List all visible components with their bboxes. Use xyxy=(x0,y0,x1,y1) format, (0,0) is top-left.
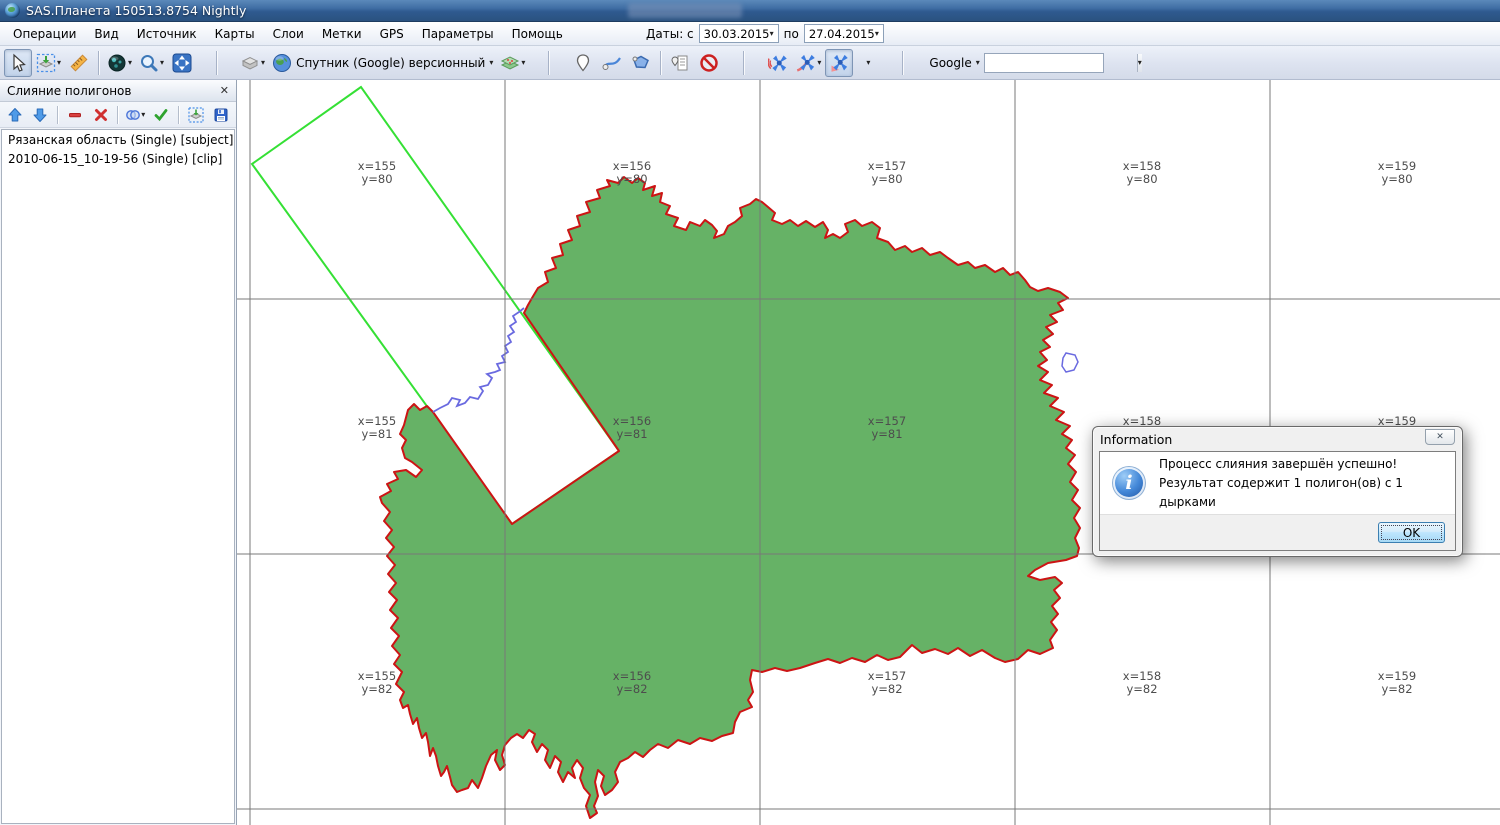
chevron-down-icon: ▾ xyxy=(521,59,525,67)
map-source-button[interactable]: Спутник (Google) версионный ▾ xyxy=(269,49,496,77)
date-from-combobox[interactable]: 30.03.2015 ▾ xyxy=(699,24,779,43)
toolbar-separator xyxy=(660,51,661,75)
chevron-down-icon: ▾ xyxy=(160,59,164,67)
tile-label: x=156 xyxy=(613,159,651,173)
chevron-down-icon: ▾ xyxy=(866,59,870,67)
menu-item-7[interactable]: GPS xyxy=(371,23,413,45)
panel-header: Слияние полигонов ✕ xyxy=(0,80,236,102)
tile-label: y=82 xyxy=(1126,682,1157,696)
polygon-list-item[interactable]: Рязанская область (Single) [subject] xyxy=(2,130,234,149)
menu-item-3[interactable]: Источник xyxy=(128,23,206,45)
pan-tool-button[interactable] xyxy=(4,49,32,77)
toolbar-separator xyxy=(216,51,217,75)
chevron-down-icon: ▾ xyxy=(976,59,980,67)
tile-label: y=82 xyxy=(361,682,392,696)
ok-button[interactable]: OK xyxy=(1378,522,1445,543)
ruler-icon xyxy=(69,53,89,73)
move-down-button[interactable] xyxy=(29,104,53,126)
polygon-list-item[interactable]: 2010-06-15_10-19-56 (Single) [clip] xyxy=(2,149,234,168)
save-floppy-icon xyxy=(213,107,229,123)
apply-merge-button[interactable] xyxy=(149,104,173,126)
date-to-combobox[interactable]: 27.04.2015 ▾ xyxy=(804,24,884,43)
dialog-message: Процесс слияния завершён успешно! Резуль… xyxy=(1159,455,1449,512)
remove-item-button[interactable] xyxy=(63,104,87,126)
date-from-value: 30.03.2015 xyxy=(704,27,770,41)
toolbar-separator xyxy=(902,51,903,75)
fullscreen-arrows-icon xyxy=(172,53,192,73)
tile-label: x=155 xyxy=(358,159,396,173)
gps-satellite-track-icon xyxy=(796,53,816,73)
dates-label: Даты: с xyxy=(646,27,694,41)
date-filter: Даты: с 30.03.2015 ▾ по 27.04.2015 ▾ xyxy=(646,24,884,43)
cache-box-icon xyxy=(240,53,260,73)
menu-item-4[interactable]: Карты xyxy=(206,23,264,45)
add-polygon-button[interactable] xyxy=(627,49,655,77)
merge-circles-icon xyxy=(125,107,141,123)
tile-label: y=82 xyxy=(616,682,647,696)
tile-label: y=82 xyxy=(1381,682,1412,696)
search-provider-button[interactable]: Google ▾ xyxy=(923,49,982,77)
no-sign-icon xyxy=(699,53,719,73)
window-titlebar: SAS.Планета 150513.8754 Nightly xyxy=(0,0,1500,22)
placemark-pin-icon xyxy=(573,53,593,73)
date-to-value: 27.04.2015 xyxy=(809,27,875,41)
cache-mode-button[interactable]: ▾ xyxy=(237,49,268,77)
selection-manager-button[interactable]: ▾ xyxy=(33,49,64,77)
menu-item-1[interactable]: Операции xyxy=(4,23,85,45)
arrow-down-icon xyxy=(32,107,48,123)
placemark-manager-button[interactable] xyxy=(666,49,694,77)
selection-download-icon xyxy=(188,107,204,123)
dialog-title: Information xyxy=(1100,432,1172,447)
panel-title: Слияние полигонов xyxy=(7,84,131,98)
tile-label: y=81 xyxy=(361,427,392,441)
info-icon: i xyxy=(1113,467,1145,499)
move-up-button[interactable] xyxy=(3,104,27,126)
path-route-icon xyxy=(602,53,622,73)
zoom-tool-button[interactable]: ▾ xyxy=(136,49,167,77)
fullscreen-button[interactable] xyxy=(168,49,196,77)
tile-label: x=157 xyxy=(868,414,906,428)
app-globe-icon xyxy=(5,3,20,18)
save-result-button[interactable] xyxy=(209,104,233,126)
lake-outline xyxy=(1062,353,1078,372)
region-polygon xyxy=(380,177,1080,818)
dialog-body: i Процесс слияния завершён успешно! Резу… xyxy=(1099,451,1456,551)
arrow-up-icon xyxy=(7,107,23,123)
cursor-icon xyxy=(8,53,28,73)
menu-items: ОперацииВидИсточникКартыСлоиМеткиGPSПара… xyxy=(4,23,572,45)
tile-label: x=159 xyxy=(1378,669,1416,683)
selection-download-icon xyxy=(36,53,56,73)
tile-label: x=158 xyxy=(1123,159,1161,173)
dates-between-label: по xyxy=(784,27,799,41)
clear-all-button[interactable] xyxy=(89,104,113,126)
window-title: SAS.Планета 150513.8754 Nightly xyxy=(26,3,246,18)
tile-label: y=80 xyxy=(871,172,902,186)
tile-label: y=80 xyxy=(361,172,392,186)
tile-label: y=80 xyxy=(616,172,647,186)
main-toolbar: ▾ ▾ ▾ xyxy=(0,46,1500,80)
chevron-down-icon: ▾ xyxy=(875,30,879,38)
panel-toolbar-separator xyxy=(178,106,179,124)
select-result-button[interactable] xyxy=(184,104,208,126)
tile-label: x=157 xyxy=(868,669,906,683)
menu-item-6[interactable]: Метки xyxy=(313,23,371,45)
dialog-message-line1: Процесс слияния завершён успешно! xyxy=(1159,455,1449,474)
layers-button[interactable]: ▾ xyxy=(497,49,528,77)
merge-polygons-panel: Слияние полигонов ✕ xyxy=(0,80,237,825)
close-icon[interactable]: ✕ xyxy=(220,84,229,97)
river-line xyxy=(433,308,524,412)
add-placemark-button[interactable] xyxy=(569,49,597,77)
magnifier-icon xyxy=(139,53,159,73)
menu-item-8[interactable]: Параметры xyxy=(413,23,503,45)
tile-label: x=157 xyxy=(868,159,906,173)
gps-track-button[interactable]: ▾ xyxy=(793,49,824,77)
chevron-down-icon: ▾ xyxy=(1138,59,1142,67)
chevron-down-icon: ▾ xyxy=(489,59,493,67)
tile-label: x=159 xyxy=(1378,159,1416,173)
placemark-list-icon xyxy=(670,53,690,73)
globe-map-icon xyxy=(272,53,292,73)
tile-label: x=155 xyxy=(358,414,396,428)
layers-icon xyxy=(500,53,520,73)
menu-item-2[interactable]: Вид xyxy=(85,23,127,45)
tile-label: x=156 xyxy=(613,414,651,428)
add-path-button[interactable] xyxy=(598,49,626,77)
gps-position-button[interactable] xyxy=(825,49,853,77)
dialog-message-line2: Результат содержит 1 полигон(ов) с 1 дыр… xyxy=(1159,474,1449,512)
dialog-footer: OK xyxy=(1100,514,1455,550)
show-whole-map-button[interactable]: ▾ xyxy=(104,49,135,77)
information-dialog: Information ✕ i Процесс слияния завершён… xyxy=(1092,426,1463,557)
menu-item-9[interactable]: Помощь xyxy=(503,23,572,45)
chevron-down-icon: ▾ xyxy=(141,111,145,119)
tile-label: x=156 xyxy=(613,669,651,683)
menubar: ОперацииВидИсточникКартыСлоиМеткиGPSПара… xyxy=(0,22,1500,46)
search-provider-label: Google xyxy=(926,56,974,70)
red-cross-icon xyxy=(93,107,109,123)
gps-satellite-position-icon xyxy=(829,53,849,73)
tile-label: y=80 xyxy=(1381,172,1412,186)
search-input[interactable] xyxy=(985,54,1137,72)
minus-icon xyxy=(67,107,83,123)
tile-label: y=81 xyxy=(871,427,902,441)
dialog-titlebar[interactable]: Information ✕ xyxy=(1099,427,1456,451)
menu-item-5[interactable]: Слои xyxy=(264,23,313,45)
gps-satellite-signal-icon xyxy=(768,53,788,73)
search-dropdown-button[interactable]: ▾ xyxy=(1137,54,1142,72)
tile-label: y=81 xyxy=(616,427,647,441)
chevron-down-icon: ▾ xyxy=(770,30,774,38)
tile-label: x=155 xyxy=(358,669,396,683)
measure-distance-button[interactable] xyxy=(65,49,93,77)
dark-globe-icon xyxy=(107,53,127,73)
hide-marks-button[interactable] xyxy=(695,49,723,77)
map-source-label: Спутник (Google) версионный xyxy=(293,56,488,70)
panel-toolbar: ▾ xyxy=(0,102,236,128)
chevron-down-icon: ▾ xyxy=(817,59,821,67)
green-check-icon xyxy=(153,107,169,123)
chevron-down-icon: ▾ xyxy=(261,59,265,67)
toolbar-separator xyxy=(548,51,549,75)
chevron-down-icon: ▾ xyxy=(57,59,61,67)
merge-operation-button[interactable]: ▾ xyxy=(123,104,147,126)
tile-label: x=158 xyxy=(1123,669,1161,683)
polygon-icon xyxy=(631,53,651,73)
toolbar-separator xyxy=(98,51,99,75)
gps-options-dropdown[interactable]: ▾ xyxy=(854,49,882,77)
chevron-down-icon: ▾ xyxy=(128,59,132,67)
tile-label: y=82 xyxy=(871,682,902,696)
redacted-area xyxy=(628,3,742,18)
panel-toolbar-separator xyxy=(57,106,58,124)
panel-toolbar-separator xyxy=(117,106,118,124)
search-combobox[interactable]: ▾ xyxy=(984,53,1104,73)
gps-connect-button[interactable] xyxy=(764,49,792,77)
tile-label: y=80 xyxy=(1126,172,1157,186)
close-icon[interactable]: ✕ xyxy=(1425,429,1455,445)
toolbar-separator xyxy=(743,51,744,75)
polygon-list[interactable]: Рязанская область (Single) [subject]2010… xyxy=(1,129,235,824)
